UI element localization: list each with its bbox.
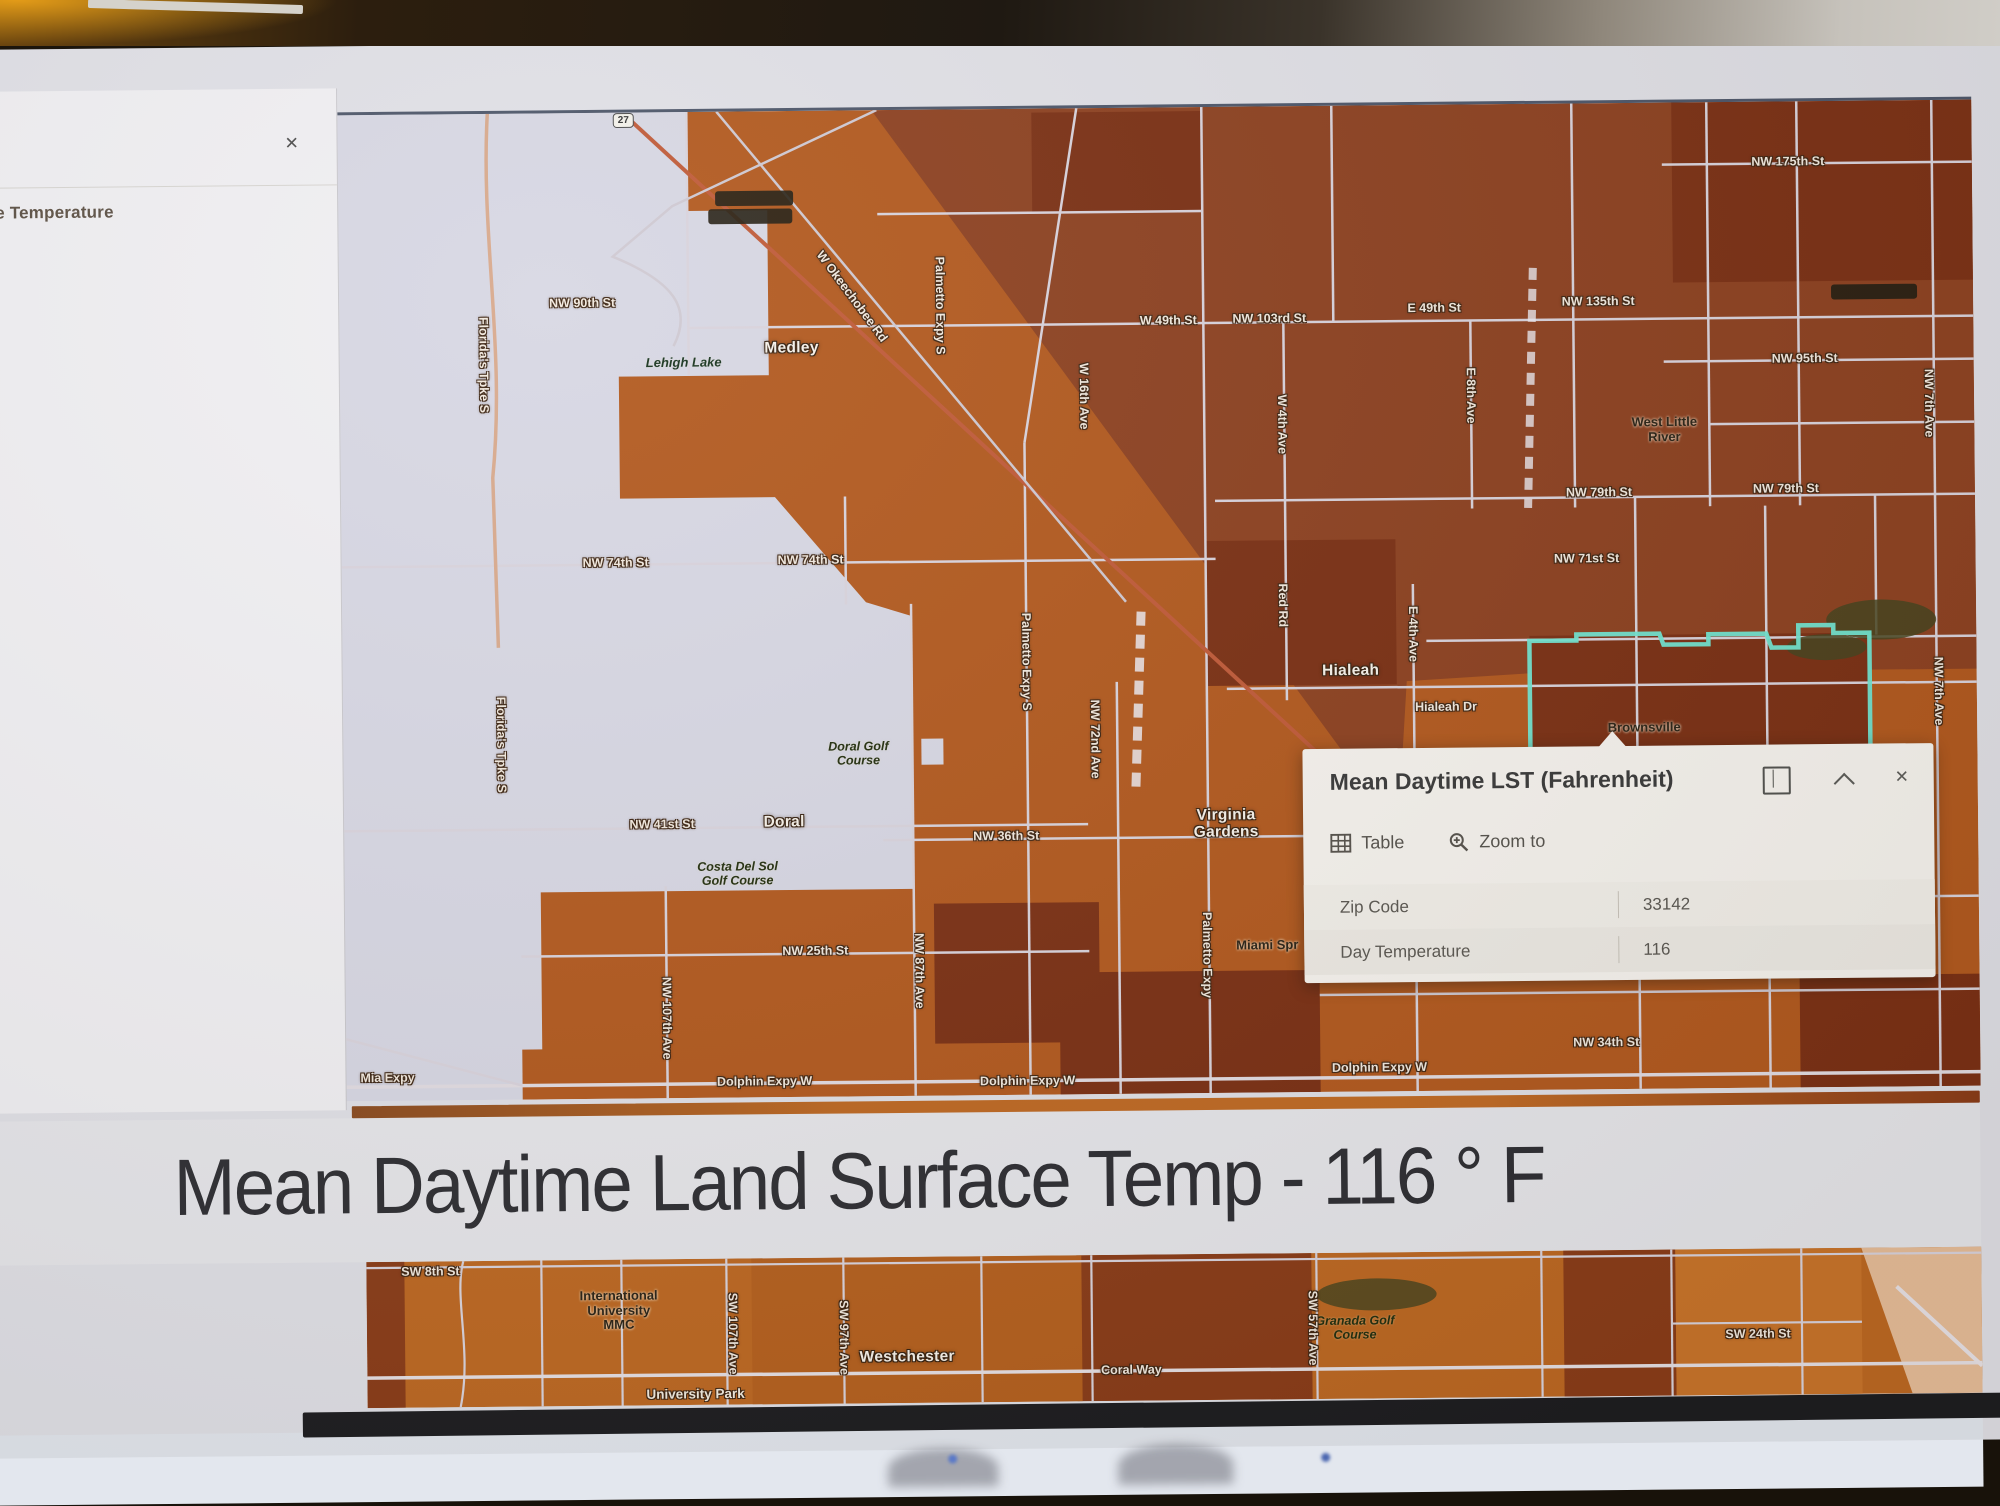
sidebar-divider — [0, 184, 337, 189]
field-row-day-temperature: Day Temperature 116 — [1304, 924, 1935, 975]
close-icon[interactable]: ✕ — [284, 135, 298, 152]
layer-sidebar-panel: ✕ rface Temperature — [0, 88, 347, 1113]
field-row-zipcode: Zip Code 33142 — [1304, 879, 1935, 930]
popup-fields: Zip Code 33142 Day Temperature 116 — [1304, 879, 1936, 975]
blurred-dot — [948, 1454, 957, 1463]
sidebar-panel-title: rface Temperature — [0, 202, 114, 223]
table-button-label: Table — [1361, 832, 1404, 853]
photo-background: ✕ rface Temperature Mean Daytime Land Su… — [0, 0, 2000, 1424]
blurred-object — [888, 1448, 998, 1487]
field-value: 33142 — [1618, 888, 1935, 918]
zoom-to-button-label: Zoom to — [1479, 831, 1545, 853]
page-title: Mean Daytime Land Surface Temp - 116 ° F — [173, 1129, 1545, 1234]
popup-title: Mean Daytime LST (Fahrenheit) — [1330, 766, 1674, 796]
blurred-object — [1118, 1444, 1233, 1485]
field-label: Day Temperature — [1304, 940, 1618, 963]
collapse-icon[interactable] — [1834, 773, 1855, 794]
field-label: Zip Code — [1304, 895, 1618, 918]
popup-pointer — [1598, 731, 1626, 747]
dock-icon[interactable] — [1763, 766, 1791, 794]
table-button[interactable]: Table — [1330, 832, 1404, 854]
feature-popup: Mean Daytime LST (Fahrenheit) ✕ Table — [1302, 743, 1935, 983]
secondary-map-strip[interactable] — [366, 1247, 1982, 1408]
blurred-dot — [1321, 1453, 1330, 1462]
zoom-to-button[interactable]: Zoom to — [1448, 831, 1545, 853]
zoom-to-icon — [1448, 832, 1469, 853]
below-screen-area — [0, 1417, 1984, 1506]
close-icon[interactable]: ✕ — [1895, 767, 1909, 787]
table-icon — [1330, 834, 1351, 853]
screen-content: ✕ rface Temperature Mean Daytime Land Su… — [0, 30, 2000, 1459]
field-value: 116 — [1618, 933, 1935, 963]
